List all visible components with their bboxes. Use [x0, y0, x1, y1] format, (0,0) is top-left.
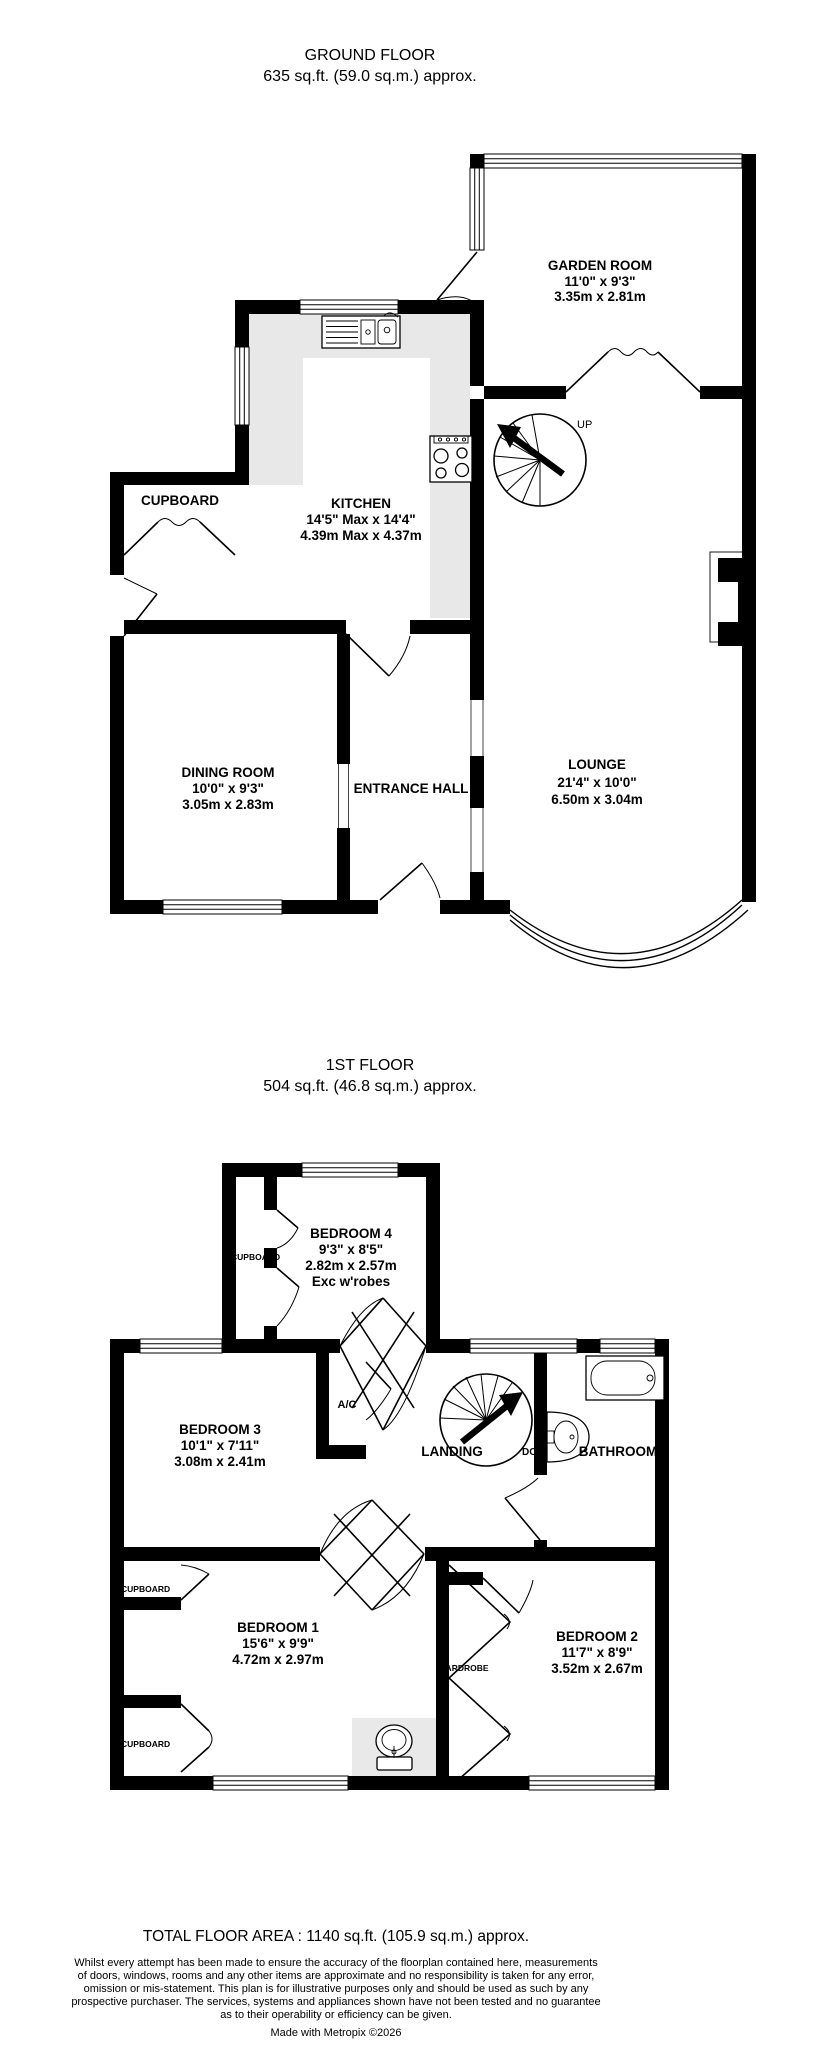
- bedroom2-metric: 3.52m x 2.67m: [551, 1661, 643, 1676]
- room-label-bedroom2: BEDROOM 2 11'7" x 8'9" 3.52m x 2.67m: [551, 1629, 643, 1676]
- room-label-garden-room: GARDEN ROOM 11'0" x 9'3" 3.35m x 2.81m: [548, 258, 652, 304]
- lounge-name: LOUNGE: [568, 757, 626, 772]
- floorplan-page: GROUND FLOOR 635 sq.ft. (59.0 sq.m.) app…: [0, 0, 838, 2048]
- door: [124, 519, 235, 556]
- bedroom4-imperial: 9'3" x 8'5": [319, 1242, 383, 1257]
- window: [213, 1776, 348, 1790]
- window: [302, 1163, 398, 1177]
- lounge-imperial: 21'4" x 10'0": [557, 775, 636, 790]
- bedroom1-imperial: 15'6" x 9'9": [242, 1636, 314, 1651]
- ground-floor-plan: GROUND FLOOR 635 sq.ft. (59.0 sq.m.) app…: [110, 47, 756, 968]
- double-doors-garden-room: [484, 349, 742, 400]
- bathroom-label: BATHROOM: [579, 1444, 658, 1459]
- window: [470, 168, 484, 250]
- stairs-up-label: UP: [577, 419, 592, 431]
- first-floor-plan: 1ST FLOOR 504 sq.ft. (46.8 sq.m.) approx…: [110, 1057, 669, 1790]
- disclaimer-line: Whilst every attempt has been made to en…: [74, 1957, 598, 1969]
- dining-room-name: DINING ROOM: [182, 765, 275, 780]
- front-wall: [110, 863, 748, 968]
- door-bathroom: [505, 1478, 540, 1540]
- door-star-bedroom1: [320, 1500, 424, 1610]
- first-floor-title: 1ST FLOOR: [326, 1057, 415, 1074]
- door: [346, 634, 410, 676]
- toilet-icon: [352, 1718, 436, 1776]
- fireplace-icon: [710, 552, 744, 646]
- dining-room-imperial: 10'0" x 9'3": [192, 781, 264, 796]
- floorplan-canvas: GROUND FLOOR 635 sq.ft. (59.0 sq.m.) app…: [0, 0, 838, 2048]
- bedroom1-cupboard-bottom-label: CUPBOARD: [121, 1739, 170, 1749]
- window: [470, 1339, 577, 1353]
- window: [600, 1339, 655, 1353]
- garden-room-metric: 3.35m x 2.81m: [554, 289, 646, 304]
- window: [484, 154, 742, 168]
- disclaimer-line: of doors, windows, rooms and any other i…: [78, 1970, 595, 1982]
- disclaimer-line: as to their operability or efficiency ca…: [220, 2009, 452, 2021]
- bedroom1-name: BEDROOM 1: [237, 1620, 319, 1635]
- room-cupboard: [110, 472, 249, 555]
- bedroom2-imperial: 11'7" x 8'9": [561, 1645, 632, 1660]
- bedroom4-cupboard-label: CUPBOARD: [231, 1252, 280, 1262]
- door-bedroom2: [483, 1578, 533, 1613]
- ac-label: A/C: [338, 1399, 357, 1411]
- dining-room-metric: 3.05m x 2.83m: [182, 797, 274, 812]
- window: [163, 900, 282, 914]
- door: [437, 252, 477, 304]
- metropix-credit: Made with Metropix ©2026: [270, 2027, 401, 2039]
- bedroom1-metric: 4.72m x 2.97m: [232, 1652, 324, 1667]
- stove-icon: [430, 436, 472, 482]
- door-cupboards-bedroom1: [181, 1565, 212, 1772]
- footer: TOTAL FLOOR AREA : 1140 sq.ft. (105.9 sq…: [71, 1928, 600, 2039]
- room-label-dining-room: DINING ROOM 10'0" x 9'3" 3.05m x 2.83m: [182, 765, 275, 812]
- room-label-lounge: LOUNGE 21'4" x 10'0" 6.50m x 3.04m: [551, 757, 643, 807]
- bedroom4-name: BEDROOM 4: [310, 1226, 392, 1241]
- front-door: [380, 863, 440, 900]
- kitchen-name: KITCHEN: [331, 496, 391, 511]
- bedroom3-imperial: 10'1" x 7'11": [181, 1438, 260, 1453]
- garden-room-name: GARDEN ROOM: [548, 258, 652, 273]
- wardrobe-doors: [449, 1565, 510, 1788]
- kitchen-metric: 4.39m Max x 4.37m: [300, 528, 422, 543]
- bathtub-icon: [586, 1356, 664, 1400]
- wardrobe-label: WARDROBE: [438, 1663, 489, 1673]
- entrance-hall-label: ENTRANCE HALL: [354, 781, 469, 796]
- room-label-bedroom3: BEDROOM 3 10'1" x 7'11" 3.08m x 2.41m: [174, 1422, 266, 1469]
- bedroom4-metric: 2.82m x 2.57m: [305, 1258, 397, 1273]
- first-floor-area: 504 sq.ft. (46.8 sq.m.) approx.: [263, 1078, 476, 1095]
- lounge-metric: 6.50m x 3.04m: [551, 792, 643, 807]
- bedroom2-name: BEDROOM 2: [556, 1629, 638, 1644]
- room-label-kitchen: KITCHEN 14'5" Max x 14'4" 4.39m Max x 4.…: [300, 496, 422, 543]
- kitchen-imperial: 14'5" Max x 14'4": [306, 512, 415, 527]
- window: [300, 300, 398, 314]
- cupboard-label: CUPBOARD: [141, 493, 219, 508]
- window: [140, 1339, 222, 1353]
- bedroom3-metric: 3.08m x 2.41m: [174, 1454, 266, 1469]
- bay-window: [510, 900, 748, 968]
- dining-hall-divider: [337, 634, 350, 914]
- ground-floor-area: 635 sq.ft. (59.0 sq.m.) approx.: [263, 68, 476, 85]
- spiral-staircase-up-icon: [494, 414, 586, 506]
- disclaimer-line: omission or mis-statement. This plan is …: [84, 1983, 589, 1995]
- landing-label: LANDING: [421, 1444, 483, 1459]
- room-label-bedroom1: BEDROOM 1 15'6" x 9'9" 4.72m x 2.97m: [232, 1620, 324, 1667]
- exterior-left-wall: [110, 555, 157, 914]
- garden-room-imperial: 11'0" x 9'3": [564, 274, 635, 289]
- bedroom1-cupboard-top-label: CUPBOARD: [121, 1584, 170, 1594]
- room-label-bedroom4: BEDROOM 4 9'3" x 8'5" 2.82m x 2.57m Exc …: [305, 1226, 397, 1289]
- disclaimer-line: prospective purchaser. The services, sys…: [71, 1996, 600, 2008]
- total-floor-area: TOTAL FLOOR AREA : 1140 sq.ft. (105.9 sq…: [143, 1928, 529, 1945]
- sink-icon: [322, 313, 400, 348]
- ground-floor-title: GROUND FLOOR: [305, 47, 436, 64]
- door: [277, 1210, 299, 1326]
- bedroom3-name: BEDROOM 3: [179, 1422, 261, 1437]
- door-ac: [366, 1362, 391, 1420]
- window: [235, 347, 249, 425]
- bedroom4-note: Exc w'robes: [312, 1274, 390, 1289]
- window: [529, 1776, 655, 1790]
